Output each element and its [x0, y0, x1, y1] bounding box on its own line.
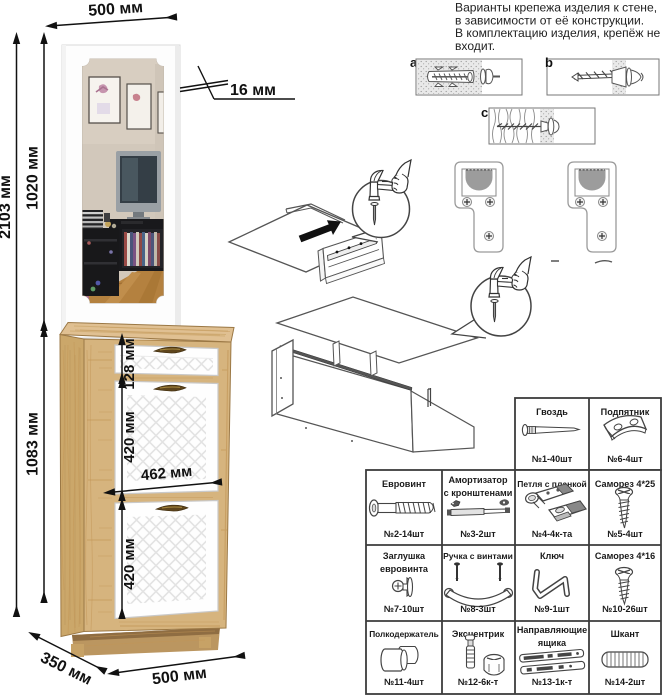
svg-text:№8-3шт: №8-3шт	[460, 604, 496, 614]
svg-text:2103 мм: 2103 мм	[0, 175, 14, 239]
svg-text:№11-4шт: №11-4шт	[384, 677, 424, 687]
svg-text:16 мм: 16 мм	[230, 82, 276, 99]
svg-text:евровинта: евровинта	[380, 564, 429, 574]
svg-text:№12-6к-т: №12-6к-т	[458, 677, 499, 687]
svg-text:c: c	[481, 105, 488, 120]
svg-text:Ручка с винтами: Ручка с винтами	[443, 551, 513, 561]
svg-text:Евровинт: Евровинт	[382, 479, 426, 489]
svg-text:№1-40шт: №1-40шт	[532, 454, 573, 464]
svg-text:Эксцентрик: Эксцентрик	[452, 629, 505, 639]
svg-text:№2-14шт: №2-14шт	[384, 529, 425, 539]
svg-text:ящика: ящика	[538, 638, 567, 648]
svg-text:№5-4шт: №5-4шт	[607, 529, 643, 539]
svg-text:№9-1шт: №9-1шт	[534, 604, 570, 614]
svg-text:№14-2шт: №14-2шт	[605, 677, 646, 687]
svg-text:128 мм: 128 мм	[121, 338, 138, 389]
svg-text:Гвоздь: Гвоздь	[536, 407, 568, 417]
svg-text:№6-4шт: №6-4шт	[607, 454, 643, 464]
svg-text:№4-4к-та: №4-4к-та	[532, 529, 573, 539]
svg-text:Саморез 4*16: Саморез 4*16	[595, 551, 655, 561]
svg-text:420 мм: 420 мм	[121, 538, 138, 589]
svg-text:№3-2шт: №3-2шт	[460, 529, 496, 539]
svg-text:Направляющие: Направляющие	[517, 625, 587, 635]
svg-text:b: b	[545, 55, 553, 70]
svg-text:№10-26шт: №10-26шт	[602, 604, 648, 614]
svg-text:Полкодержатель: Полкодержатель	[369, 629, 439, 639]
svg-text:1020 мм: 1020 мм	[25, 146, 42, 210]
svg-text:Шкант: Шкант	[611, 629, 640, 639]
svg-text:входит.: входит.	[455, 39, 495, 53]
svg-text:Петля с планкой: Петля с планкой	[517, 479, 587, 489]
svg-text:1083 мм: 1083 мм	[25, 412, 42, 476]
svg-text:с кронштенами: с кронштенами	[444, 488, 513, 498]
svg-text:Заглушка: Заглушка	[383, 551, 426, 561]
svg-text:№13-1к-т: №13-1к-т	[532, 677, 573, 687]
svg-text:№7-10шт: №7-10шт	[384, 604, 425, 614]
svg-text:420 мм: 420 мм	[121, 411, 138, 462]
svg-text:Ключ: Ключ	[540, 551, 564, 561]
svg-text:Амортизатор: Амортизатор	[448, 475, 508, 485]
